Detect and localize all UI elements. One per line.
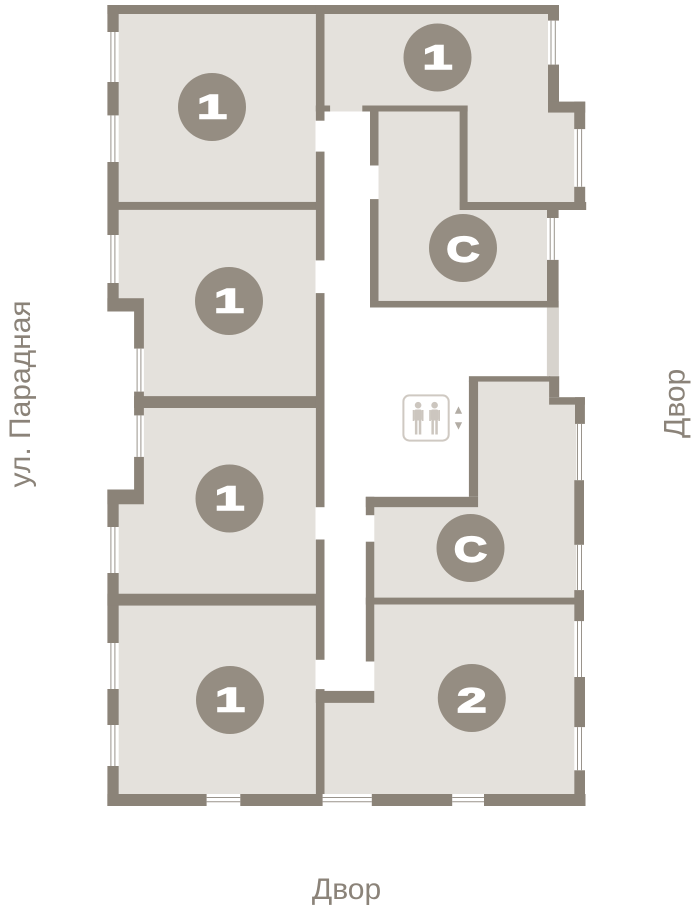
svg-text:1: 1	[197, 87, 227, 126]
svg-text:C: C	[447, 229, 480, 269]
svg-text:ул. Парадная: ул. Парадная	[4, 300, 37, 487]
svg-text:1: 1	[215, 680, 245, 719]
svg-text:1: 1	[214, 281, 244, 320]
svg-text:1: 1	[423, 38, 453, 77]
svg-text:C: C	[454, 529, 487, 569]
svg-text:Двор: Двор	[312, 873, 381, 906]
svg-text:1: 1	[215, 479, 245, 518]
svg-text:Двор: Двор	[658, 369, 691, 438]
svg-text:2: 2	[457, 682, 486, 720]
